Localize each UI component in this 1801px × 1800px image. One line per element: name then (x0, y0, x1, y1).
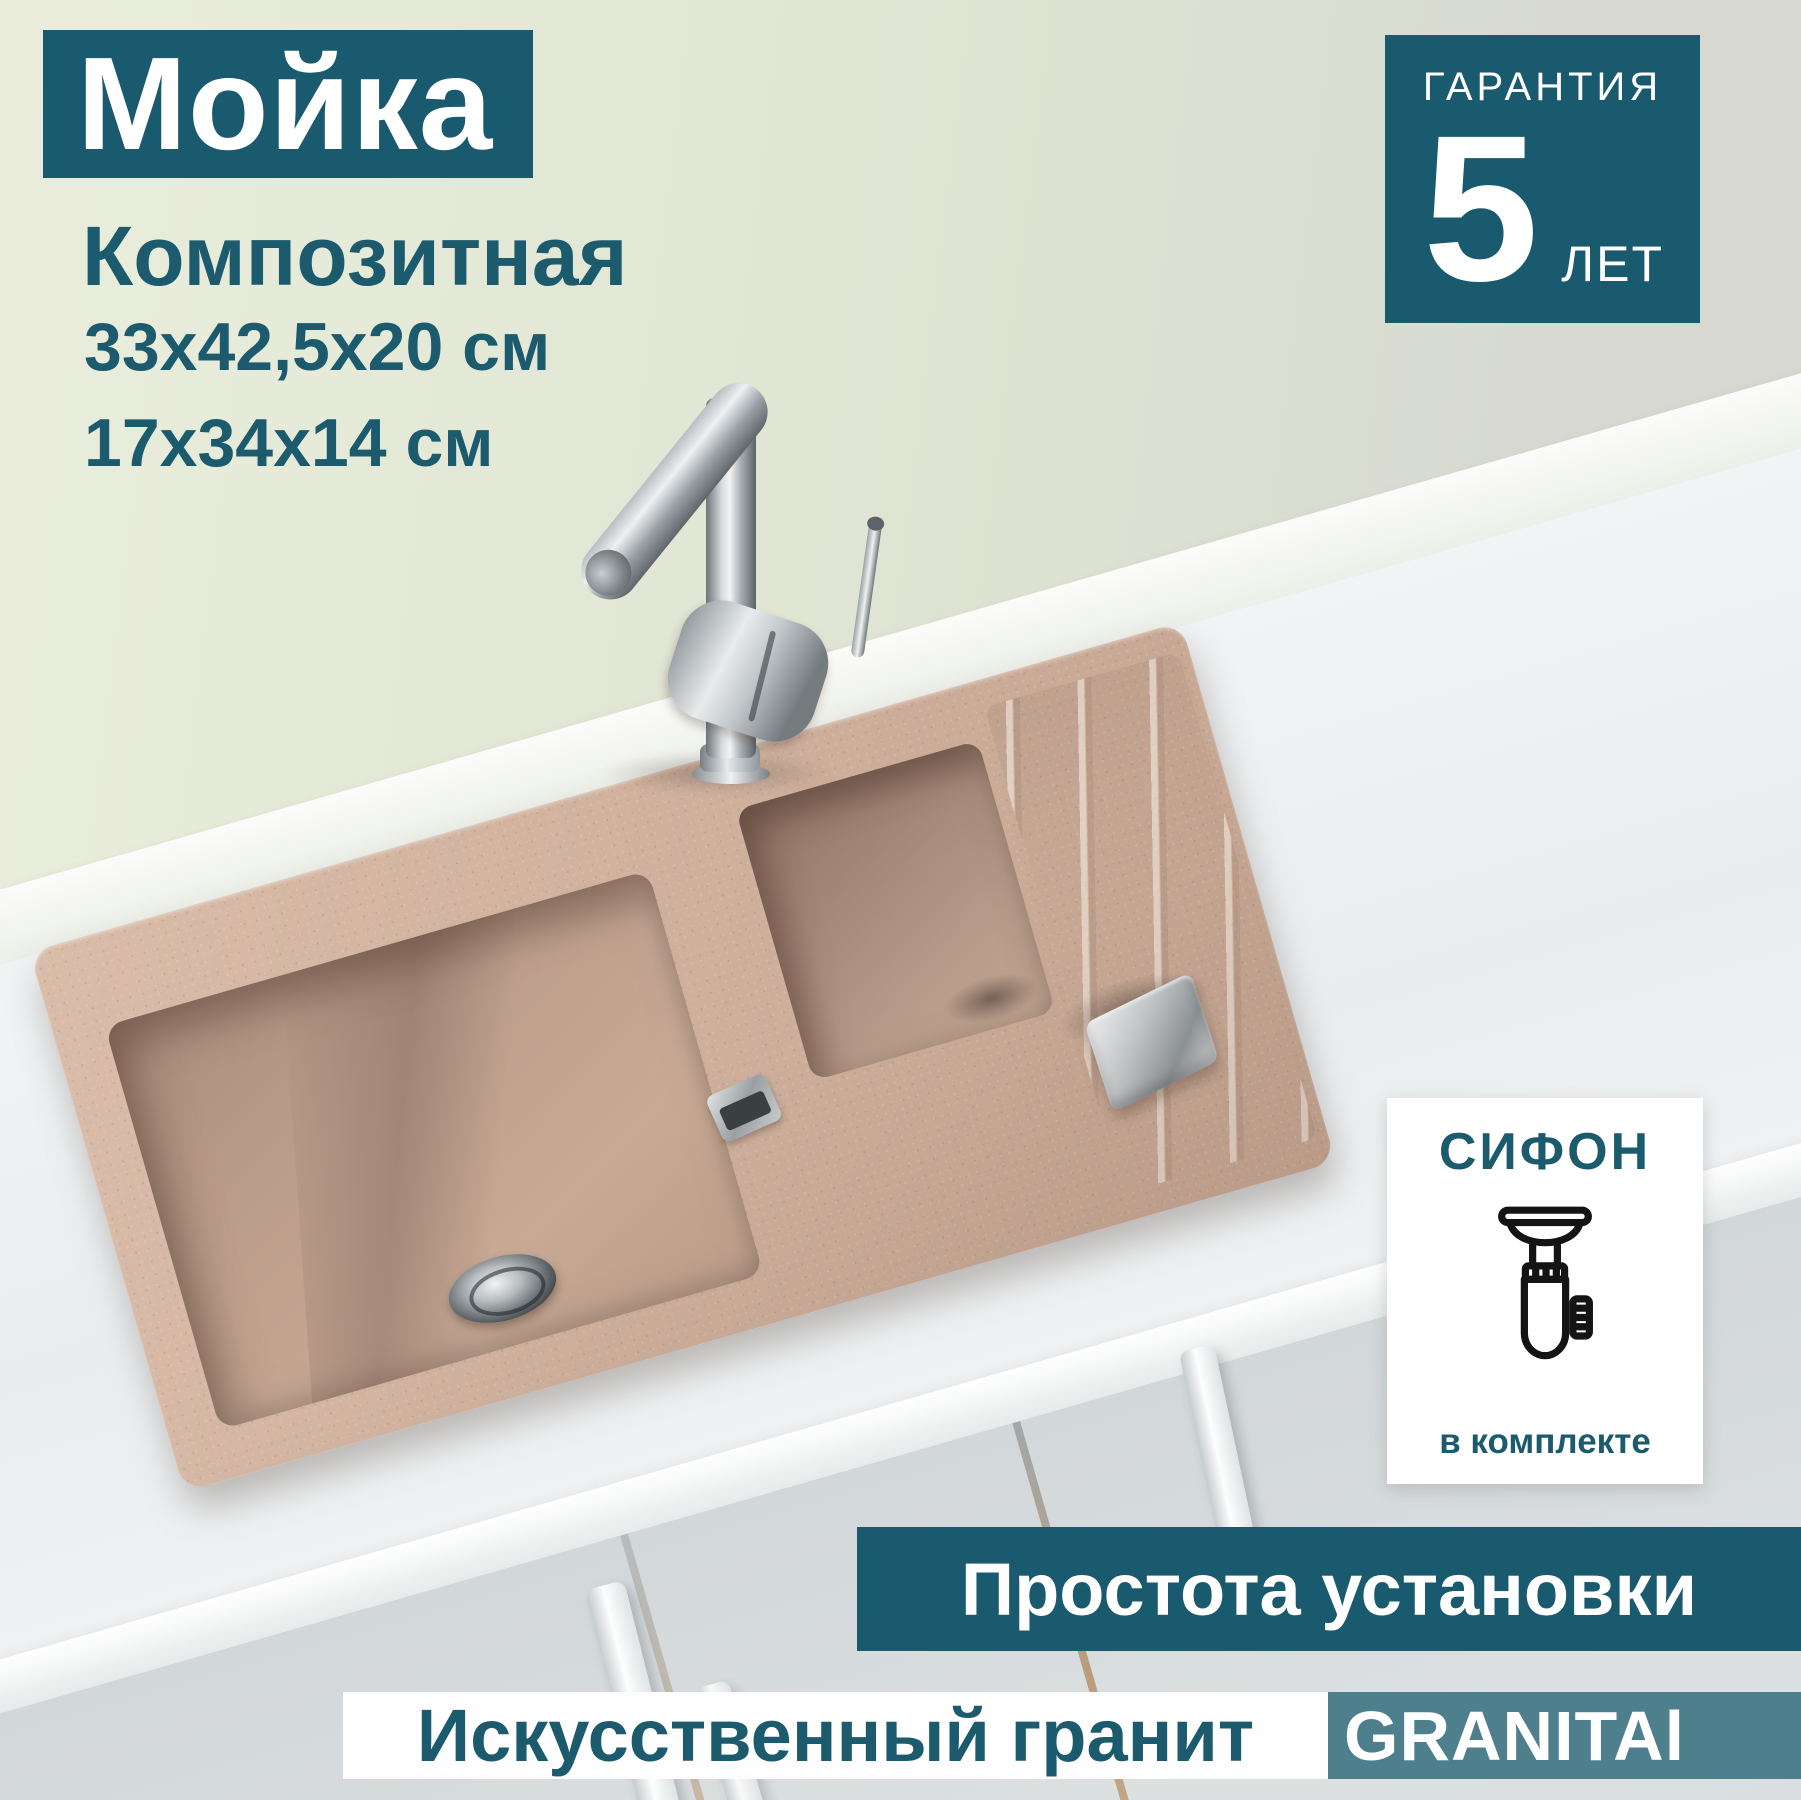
warranty-years-unit: ЛЕТ (1561, 235, 1664, 293)
title-block: Мойка (43, 30, 533, 178)
warranty-badge: ГАРАНТИЯ 5 ЛЕТ (1385, 35, 1700, 323)
product-title: Мойка (77, 38, 493, 170)
faucet-lever-handle (850, 520, 882, 658)
product-dimensions-line: 17x34x14 см (84, 404, 494, 482)
product-card: Мойка Композитная 33x42,5x20 см 17x34x14… (0, 0, 1801, 1800)
installation-banner-text: Простота установки (961, 1547, 1697, 1632)
siphon-card-title: СИФОН (1439, 1122, 1651, 1182)
brand-name: GRANITAl (1344, 1696, 1685, 1776)
siphon-icon (1493, 1204, 1597, 1400)
siphon-card-caption: в комплекте (1439, 1422, 1651, 1462)
warranty-years-value: 5 (1423, 105, 1539, 313)
material-banner-text: Искусственный гранит (417, 1693, 1254, 1778)
product-subtitle: Композитная (82, 210, 628, 302)
product-dimensions-line: 33x42,5x20 см (84, 308, 550, 386)
siphon-card: СИФОН в комплекте (1387, 1098, 1703, 1484)
material-banner: Искусственный гранит (343, 1692, 1328, 1779)
faucet-body (657, 590, 839, 753)
installation-banner: Простота установки (857, 1527, 1801, 1651)
brand-banner: GRANITAl (1328, 1692, 1801, 1779)
